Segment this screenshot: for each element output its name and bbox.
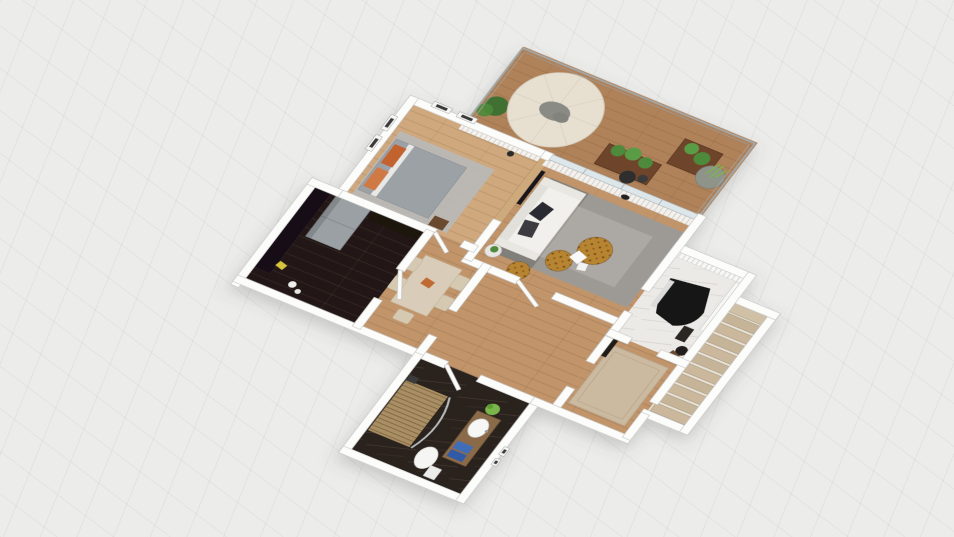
floorplan-render [0, 0, 954, 537]
apartment-plan [158, 12, 874, 537]
viewport-canvas[interactable] [0, 0, 954, 537]
kitchen-door [397, 270, 402, 299]
